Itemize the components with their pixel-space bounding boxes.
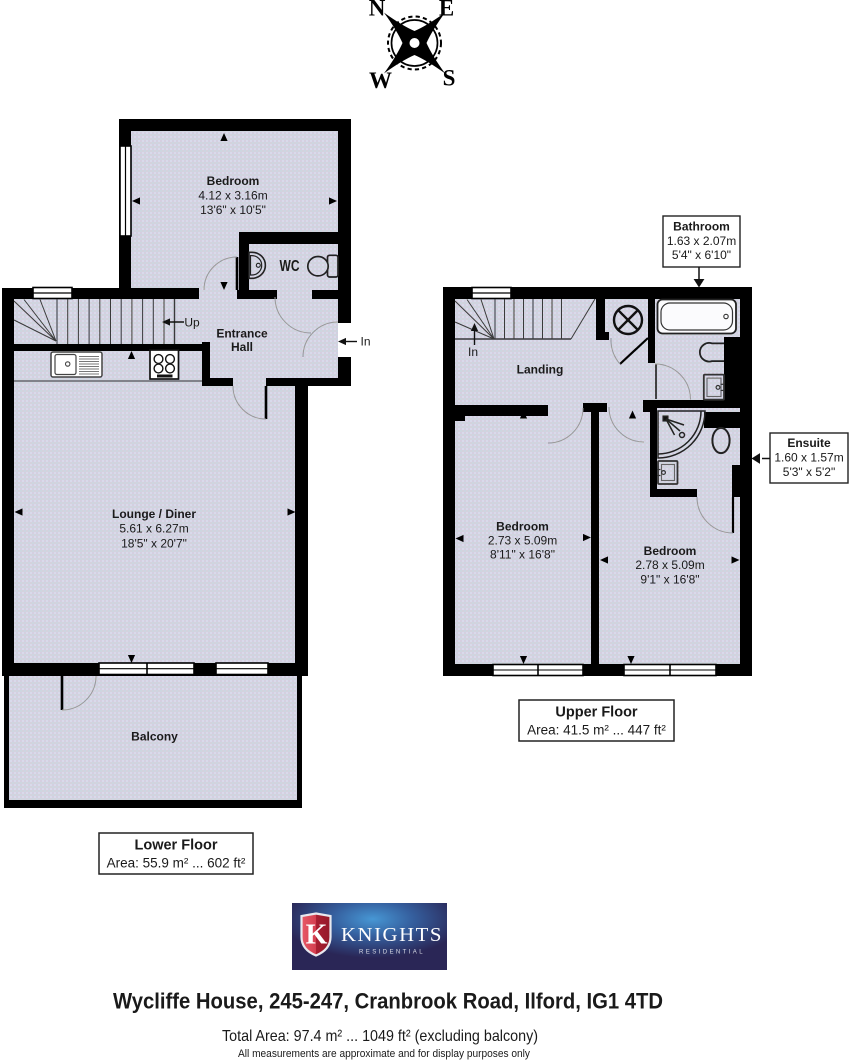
- svg-text:Lounge / Diner: Lounge / Diner: [112, 507, 196, 521]
- svg-text:Bedroom: Bedroom: [207, 174, 260, 188]
- svg-text:1.60 x 1.57m: 1.60 x 1.57m: [774, 451, 843, 465]
- svg-text:13'6" x 10'5": 13'6" x 10'5": [200, 203, 266, 217]
- svg-text:2.78 x 5.09m: 2.78 x 5.09m: [635, 558, 704, 572]
- svg-text:4.12 x 3.16m: 4.12 x 3.16m: [198, 189, 267, 203]
- svg-text:Bedroom: Bedroom: [496, 520, 549, 534]
- svg-text:5.61 x 6.27m: 5.61 x 6.27m: [119, 522, 188, 536]
- svg-text:Lower Floor: Lower Floor: [135, 838, 218, 854]
- svg-text:W: W: [369, 68, 392, 93]
- svg-text:Bathroom: Bathroom: [673, 220, 730, 234]
- svg-text:Upper Floor: Upper Floor: [555, 705, 638, 721]
- svg-text:9'1" x 16'8": 9'1" x 16'8": [640, 573, 699, 587]
- svg-text:In: In: [360, 335, 370, 349]
- svg-text:Ensuite: Ensuite: [787, 436, 831, 450]
- svg-text:All measurements are approxima: All measurements are approximate and for…: [238, 1048, 530, 1060]
- svg-text:Wycliffe House, 245-247, Cranb: Wycliffe House, 245-247, Cranbrook Road,…: [113, 989, 663, 1014]
- svg-text:Area: 41.5 m² ... 447 ft²: Area: 41.5 m² ... 447 ft²: [527, 723, 666, 738]
- svg-text:Hall: Hall: [231, 340, 253, 354]
- svg-text:Entrance: Entrance: [216, 327, 268, 341]
- svg-text:1.63 x 2.07m: 1.63 x 2.07m: [667, 234, 736, 248]
- svg-text:RESIDENTIAL: RESIDENTIAL: [359, 949, 425, 956]
- svg-text:Up: Up: [184, 316, 200, 330]
- svg-text:WC: WC: [280, 258, 300, 275]
- svg-text:Landing: Landing: [517, 363, 564, 377]
- svg-text:E: E: [439, 0, 454, 21]
- svg-text:Bedroom: Bedroom: [644, 544, 697, 558]
- svg-text:In: In: [468, 345, 478, 359]
- svg-text:5'4" x 6'10": 5'4" x 6'10": [672, 248, 731, 262]
- svg-text:KNIGHTS: KNIGHTS: [341, 924, 443, 946]
- svg-text:S: S: [443, 66, 456, 91]
- svg-text:Balcony: Balcony: [131, 730, 178, 744]
- svg-text:K: K: [306, 920, 328, 951]
- svg-text:Area: 55.9 m² ... 602 ft²: Area: 55.9 m² ... 602 ft²: [107, 856, 246, 871]
- svg-text:5'3" x 5'2": 5'3" x 5'2": [783, 465, 835, 479]
- svg-text:Total Area: 97.4 m² ... 1049 f: Total Area: 97.4 m² ... 1049 ft² (exclud…: [222, 1028, 538, 1045]
- svg-text:2.73 x 5.09m: 2.73 x 5.09m: [488, 534, 557, 548]
- svg-text:18'5" x 20'7": 18'5" x 20'7": [121, 537, 187, 551]
- svg-text:8'11" x 16'8": 8'11" x 16'8": [490, 548, 555, 562]
- svg-text:N: N: [369, 0, 386, 21]
